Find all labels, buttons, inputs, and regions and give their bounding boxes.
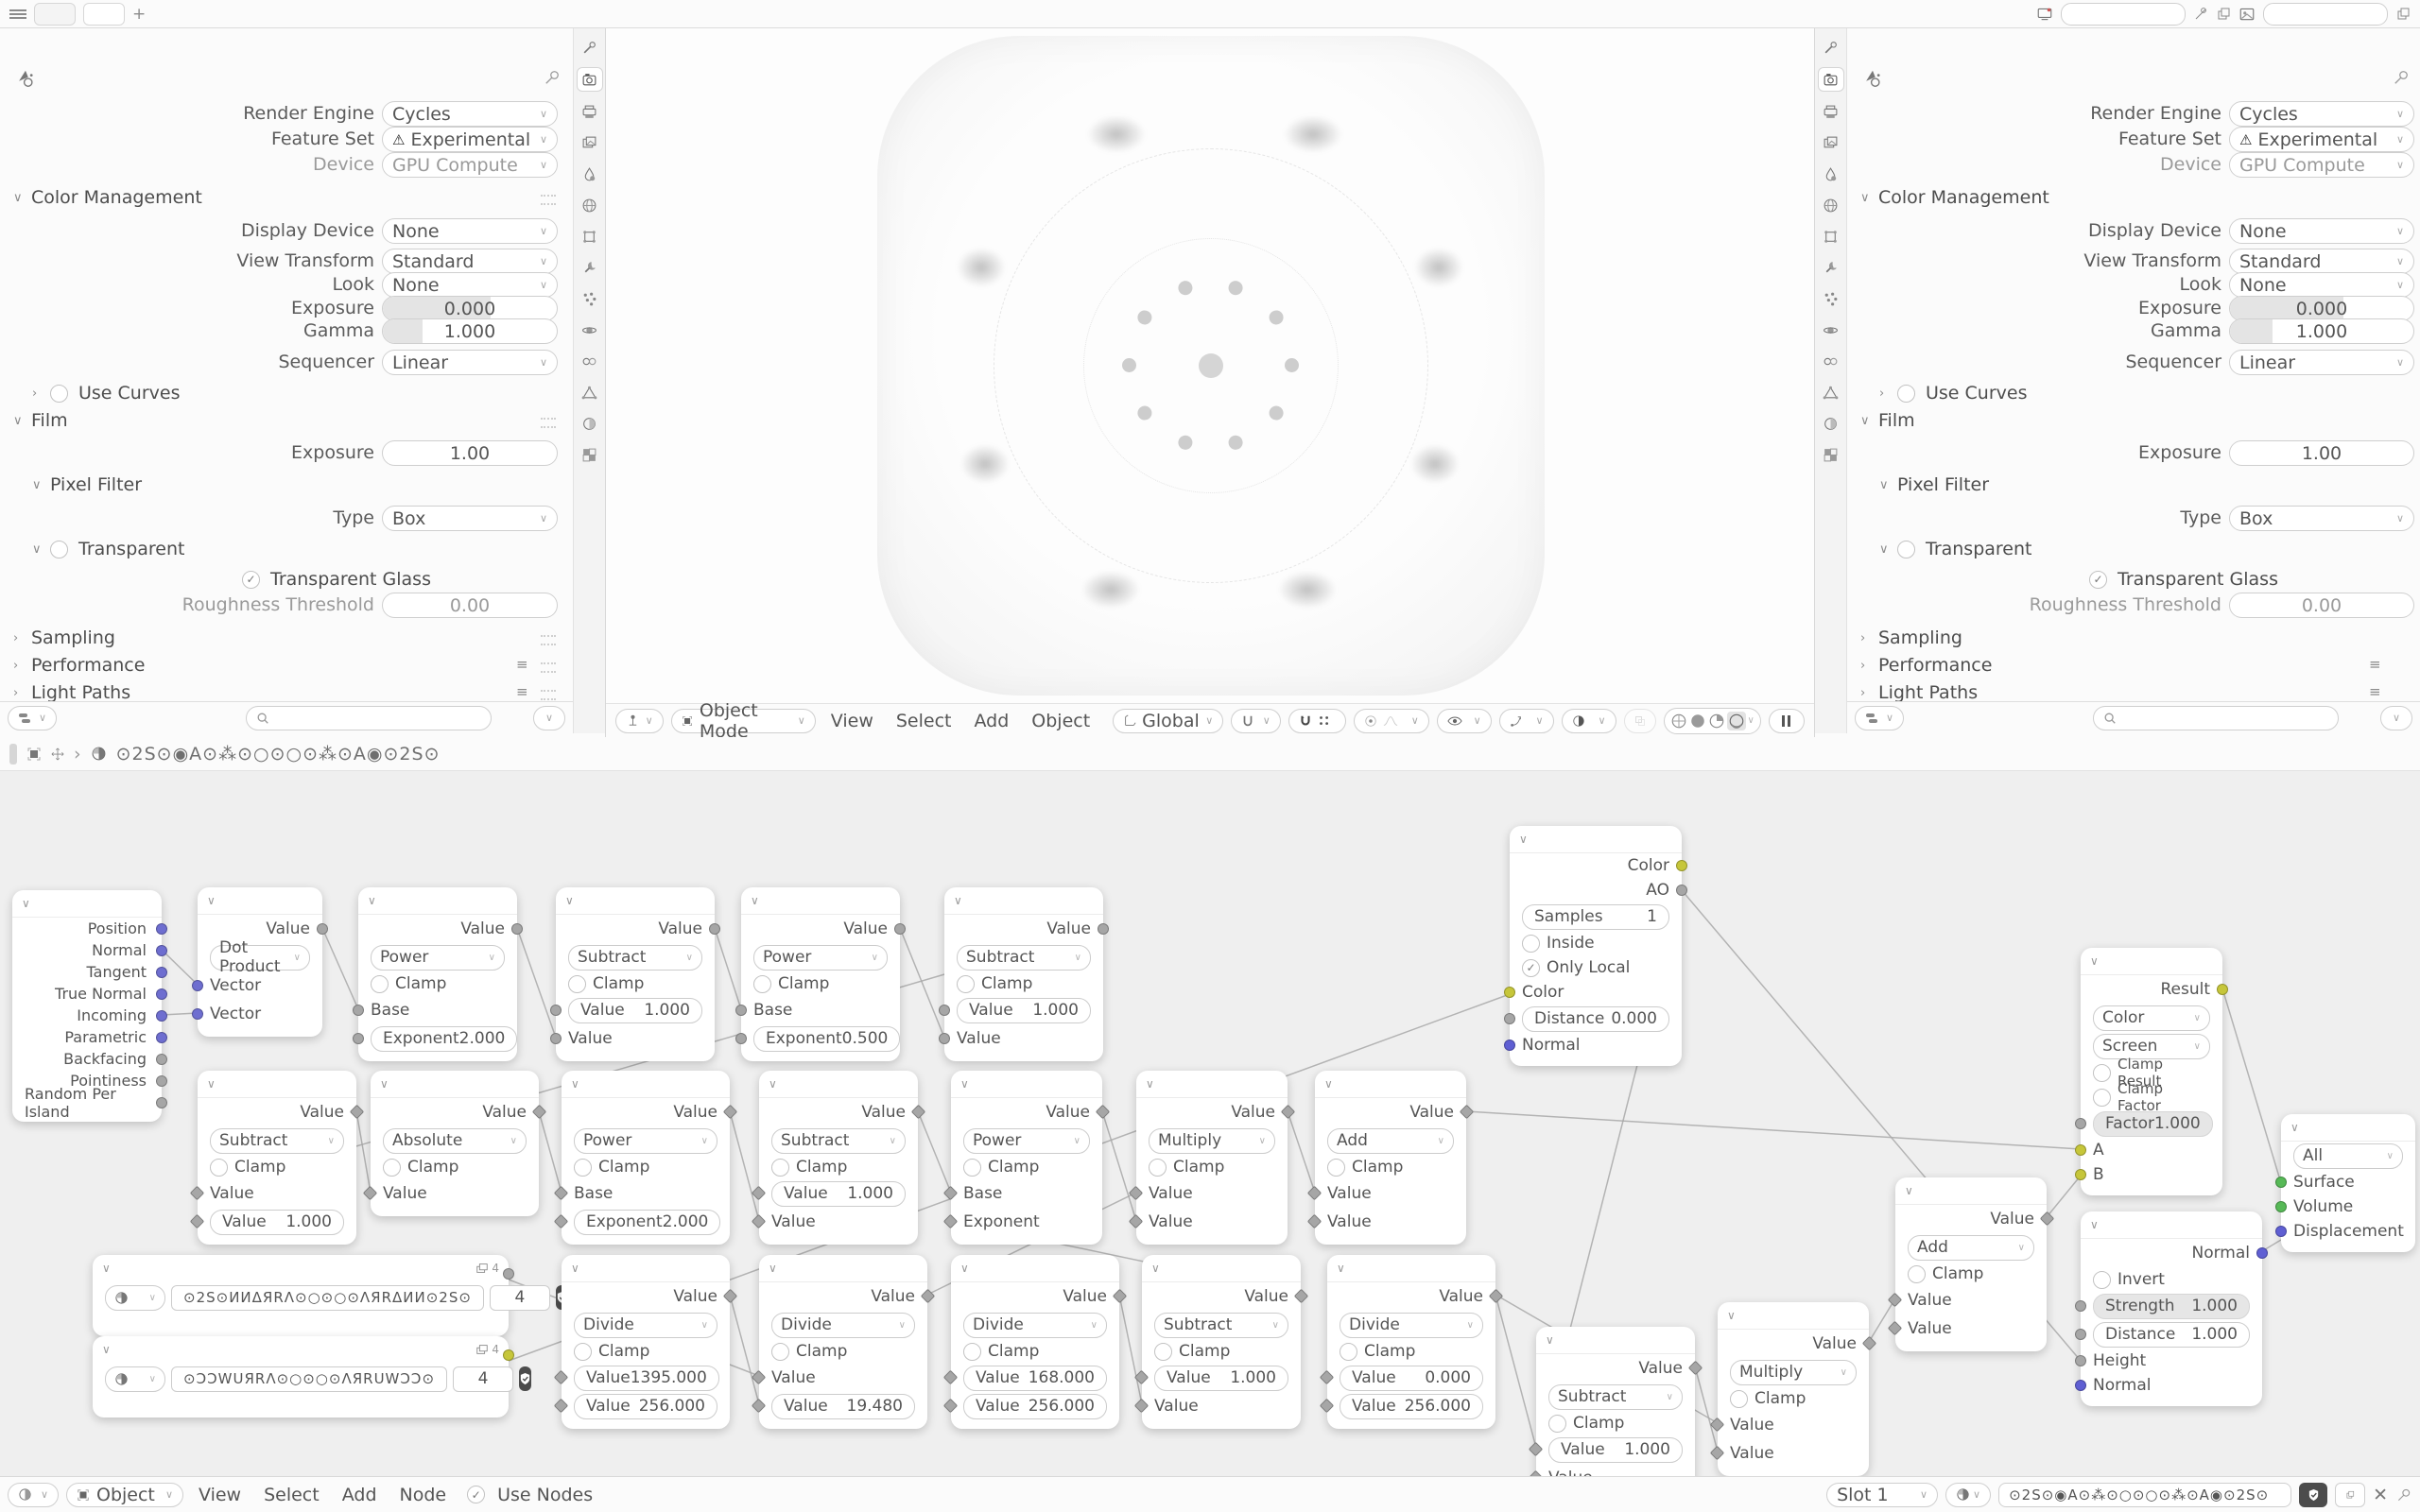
node-math-multiply-2[interactable]: ∨ Value Multiply∨ Clamp Value Value xyxy=(1718,1302,1869,1476)
socket-base-in[interactable] xyxy=(735,1005,747,1016)
socket-value-out[interactable] xyxy=(350,1105,365,1120)
search-input[interactable] xyxy=(246,706,492,730)
node-math-absolute[interactable]: ∨ Value Absolute∨ Clamp Value xyxy=(371,1071,539,1216)
clamp-checkbox[interactable] xyxy=(383,1159,401,1177)
new-material-copy-button[interactable] xyxy=(2335,1483,2365,1507)
operation-select[interactable]: Add∨ xyxy=(1327,1128,1454,1154)
value-field[interactable]: Value256.000 xyxy=(963,1394,1107,1419)
socket-value-in[interactable] xyxy=(1710,1417,1725,1433)
tab-modifiers[interactable] xyxy=(578,256,602,279)
look-select[interactable]: None∨ xyxy=(382,272,558,298)
invert-checkbox[interactable] xyxy=(2093,1271,2111,1289)
unlink-icon[interactable] xyxy=(2193,7,2208,22)
section-performance[interactable]: ›Performance xyxy=(1860,655,1992,676)
copy-icon[interactable] xyxy=(2216,7,2231,22)
feature-set-select[interactable]: ⚠Experimental∨ xyxy=(2229,127,2414,152)
users-count-button[interactable]: 4 xyxy=(453,1366,513,1392)
node-mix-color[interactable]: ∨ Result Color∨ Screen∨ Clamp Result Cla… xyxy=(2081,948,2222,1195)
shading-wireframe-button[interactable] xyxy=(1670,713,1687,730)
tab-modifiers[interactable] xyxy=(1819,256,1843,279)
node-ambient-occlusion[interactable]: ∨ Color AO Samples1 Inside ✓Only Local C… xyxy=(1510,826,1682,1066)
socket-ao-out[interactable] xyxy=(1676,885,1687,896)
tab-particles[interactable] xyxy=(1819,287,1843,310)
preset-list-icon[interactable]: ≡ xyxy=(2369,683,2381,700)
shader-type-select[interactable]: Object∨ xyxy=(66,1483,183,1507)
socket-value-in[interactable] xyxy=(943,1399,959,1414)
socket-value-out[interactable] xyxy=(532,1105,547,1120)
display-icon[interactable] xyxy=(2036,6,2053,23)
subsection-pixel-filter[interactable]: ∨Pixel Filter xyxy=(32,474,142,495)
fake-user-shield-button[interactable] xyxy=(519,1366,531,1391)
operation-select[interactable]: Add∨ xyxy=(1908,1235,2034,1261)
copy-icon[interactable] xyxy=(2395,7,2411,22)
editor-type-dropdown[interactable]: ∨ xyxy=(615,709,664,733)
value-field[interactable]: Value1395.000 xyxy=(574,1366,719,1391)
operation-select[interactable]: Power∨ xyxy=(753,945,888,971)
socket-value-in[interactable] xyxy=(550,1005,562,1016)
socket-color-out[interactable] xyxy=(503,1349,514,1361)
socket-value-in[interactable] xyxy=(190,1186,205,1201)
tab-material[interactable] xyxy=(578,412,602,435)
socket-value-in[interactable] xyxy=(1134,1399,1149,1414)
section-color-management[interactable]: ∨Color Management xyxy=(13,187,202,208)
operation-select[interactable]: Subtract∨ xyxy=(1154,1313,1288,1338)
device-select[interactable]: GPU Compute∨ xyxy=(382,152,558,178)
transparent-glass-checkbox[interactable]: ✓ xyxy=(242,571,260,589)
filter-toggle-button[interactable]: ∨ xyxy=(1855,706,1904,730)
shading-material-button[interactable] xyxy=(1708,713,1725,730)
socket-color-in[interactable] xyxy=(1504,987,1515,998)
clamp-checkbox[interactable] xyxy=(963,1159,981,1177)
app-menu-icon[interactable] xyxy=(9,8,26,21)
node-image-texture-1[interactable]: ∨4 ∨ ⊙2S⊙ИИΔЯRΛ⊙○⊙○⊙ΛЯRΔИИ⊙2S⊙ 4 xyxy=(93,1255,509,1336)
film-exposure-slider[interactable]: 1.00 xyxy=(382,440,558,466)
snap-toggle-group[interactable] xyxy=(1288,709,1347,733)
gizmo-dropdown[interactable]: ∨ xyxy=(1499,709,1554,733)
socket-value-out[interactable] xyxy=(1096,1105,1111,1120)
socket-value-in[interactable] xyxy=(752,1399,767,1414)
socket-surface-in[interactable] xyxy=(2275,1177,2287,1188)
tab-data[interactable] xyxy=(578,381,602,404)
transparent-checkbox[interactable] xyxy=(50,541,68,558)
tab-render[interactable] xyxy=(577,67,603,92)
options-dropdown[interactable]: ∨ xyxy=(2380,706,2412,730)
node-math-multiply-1[interactable]: ∨ Value Multiply∨ Clamp Value Value xyxy=(1136,1071,1288,1245)
snap-target-dropdown[interactable]: ∨ xyxy=(1231,709,1281,733)
subsection-transparent[interactable]: ∨Transparent xyxy=(32,539,185,559)
operation-select[interactable]: Power∨ xyxy=(963,1128,1090,1154)
socket-value-out[interactable] xyxy=(317,923,328,935)
tab-world[interactable] xyxy=(1819,194,1843,216)
socket-value-in[interactable] xyxy=(1307,1214,1322,1229)
sequencer-select[interactable]: Linear∨ xyxy=(2229,350,2414,375)
gamma-slider[interactable]: 1.000 xyxy=(382,318,558,344)
socket-vector-in[interactable] xyxy=(192,1008,203,1020)
socket-value-in[interactable] xyxy=(1129,1186,1144,1201)
section-sampling[interactable]: ›Sampling xyxy=(1860,627,1962,648)
scene-name-input[interactable] xyxy=(2061,3,2186,26)
socket-value-in[interactable] xyxy=(1129,1214,1144,1229)
socket-normal-in[interactable] xyxy=(2075,1380,2086,1391)
clamp-factor-checkbox[interactable] xyxy=(2093,1089,2111,1107)
node-math-power-3[interactable]: ∨ Value Power∨ Clamp Base Exponent2.000 xyxy=(562,1071,730,1245)
clamp-checkbox[interactable] xyxy=(574,1159,592,1177)
render-properties-icon[interactable] xyxy=(1862,68,1883,89)
socket-value-out[interactable] xyxy=(503,1268,514,1280)
node-math-power-2[interactable]: ∨ Value Power∨ Clamp Base Exponent0.500 xyxy=(741,887,900,1061)
socket-normal-out[interactable] xyxy=(2256,1247,2268,1259)
exponent-field[interactable]: Exponent2.000 xyxy=(574,1210,720,1235)
socket-exponent-in[interactable] xyxy=(353,1033,364,1044)
socket-value-in[interactable] xyxy=(752,1370,767,1385)
display-device-select[interactable]: None∨ xyxy=(382,218,558,244)
workspace-tab-2[interactable] xyxy=(83,3,125,26)
section-film[interactable]: ∨Film xyxy=(13,410,68,431)
socket-distance-in[interactable] xyxy=(2075,1329,2086,1340)
menu-view[interactable]: View xyxy=(191,1485,249,1505)
tab-particles[interactable] xyxy=(578,287,602,310)
tab-data[interactable] xyxy=(1819,381,1843,404)
socket-value-in[interactable] xyxy=(943,1370,959,1385)
socket-value-out[interactable] xyxy=(1113,1289,1128,1304)
socket-value-out[interactable] xyxy=(894,923,906,935)
menu-add[interactable]: Add xyxy=(335,1485,385,1505)
value-field[interactable]: Value19.480 xyxy=(771,1394,915,1419)
section-film[interactable]: ∨Film xyxy=(1860,410,1915,431)
pause-render-button[interactable] xyxy=(1769,709,1805,733)
value-field[interactable]: Value1.000 xyxy=(957,998,1091,1023)
socket-value-out[interactable] xyxy=(1862,1336,1877,1351)
operation-select[interactable]: Power∨ xyxy=(371,945,505,971)
socket-backfacing[interactable] xyxy=(156,1054,167,1065)
data-type-select[interactable]: Color∨ xyxy=(2093,1005,2210,1031)
proportional-edit-dropdown[interactable]: ∨ xyxy=(1354,709,1428,733)
tab-view-layer[interactable] xyxy=(1819,131,1843,154)
socket-true-normal[interactable] xyxy=(156,988,167,1000)
node-vector-math-dot[interactable]: ∨ Value Dot Product∨ Vector Vector xyxy=(198,887,322,1037)
socket-value-out[interactable] xyxy=(2040,1211,2055,1227)
socket-value-in[interactable] xyxy=(1888,1293,1903,1308)
menu-select[interactable]: Select xyxy=(889,711,959,731)
tab-physics[interactable] xyxy=(1819,318,1843,341)
value-field[interactable]: Value1.000 xyxy=(771,1181,906,1207)
socket-value-in[interactable] xyxy=(554,1399,569,1414)
socket-color-out[interactable] xyxy=(1676,860,1687,871)
fake-user-shield-button[interactable] xyxy=(2299,1483,2327,1507)
socket-normal-in[interactable] xyxy=(1504,1039,1515,1051)
socket-base-in[interactable] xyxy=(353,1005,364,1016)
socket-b-in[interactable] xyxy=(2075,1169,2086,1180)
use-curves-checkbox[interactable] xyxy=(1897,385,1915,403)
preset-list-icon[interactable]: ≡ xyxy=(516,656,528,673)
socket-value-in[interactable] xyxy=(752,1186,767,1201)
socket-base-in[interactable] xyxy=(943,1186,959,1201)
clamp-checkbox[interactable] xyxy=(771,1159,789,1177)
image-name-field[interactable]: ⊙2S⊙ИИΔЯRΛ⊙○⊙○⊙ΛЯRΔИИ⊙2S⊙ xyxy=(171,1285,484,1311)
editor-type-dropdown[interactable]: ∨ xyxy=(8,1483,59,1507)
material-name-field[interactable]: ⊙2S⊙◉A⊙⁂⊙○⊙○⊙⁂⊙A◉⊙2S⊙ xyxy=(1998,1483,2291,1507)
look-select[interactable]: None∨ xyxy=(2229,272,2414,298)
section-light-paths[interactable]: ›Light Paths xyxy=(13,682,130,703)
section-color-management[interactable]: ∨Color Management xyxy=(1860,187,2049,208)
use-curves-checkbox[interactable] xyxy=(50,385,68,403)
object-icon[interactable] xyxy=(26,747,42,762)
tab-object[interactable] xyxy=(1819,225,1843,248)
socket-value-in[interactable] xyxy=(752,1214,767,1229)
operation-select[interactable]: Absolute∨ xyxy=(383,1128,527,1154)
socket-value-in[interactable] xyxy=(1320,1399,1335,1414)
node-math-subtract-5[interactable]: ∨ Value Subtract∨ Clamp Value1.000 Value xyxy=(1142,1255,1301,1429)
drag-dots[interactable] xyxy=(541,195,556,205)
resize-handle[interactable] xyxy=(9,744,17,765)
transparent-glass-row[interactable]: ✓Transparent Glass xyxy=(2089,569,2278,590)
preset-list-icon[interactable]: ≡ xyxy=(516,683,528,700)
socket-result-out[interactable] xyxy=(2217,984,2228,995)
exposure-slider[interactable]: 0.000 xyxy=(382,296,558,321)
transparent-glass-checkbox[interactable]: ✓ xyxy=(2089,571,2107,589)
socket-value-out[interactable] xyxy=(1281,1105,1296,1120)
socket-incoming[interactable] xyxy=(156,1010,167,1022)
socket-value-out[interactable] xyxy=(1294,1289,1309,1304)
socket-distance-in[interactable] xyxy=(1504,1013,1515,1024)
tab-output[interactable] xyxy=(578,100,602,123)
clamp-checkbox[interactable] xyxy=(957,975,975,993)
socket-value-out[interactable] xyxy=(511,923,523,935)
value-field[interactable]: Value1.000 xyxy=(1154,1366,1288,1391)
tab-tool[interactable] xyxy=(1819,36,1843,59)
value-field[interactable]: Value1.000 xyxy=(210,1210,344,1235)
node-math-subtract-2[interactable]: ∨ Value Subtract∨ Clamp Value1.000 Value xyxy=(944,887,1103,1061)
menu-node[interactable]: Node xyxy=(392,1485,455,1505)
socket-exponent-in[interactable] xyxy=(554,1214,569,1229)
node-canvas[interactable]: ∨ Position Normal Tangent True Normal In… xyxy=(0,771,2420,1476)
socket-value-in[interactable] xyxy=(939,1033,950,1044)
value-field[interactable]: Value256.000 xyxy=(574,1394,717,1419)
operation-select[interactable]: Subtract∨ xyxy=(568,945,702,971)
clamp-checkbox[interactable] xyxy=(371,975,389,993)
node-math-add-1[interactable]: ∨ Value Add∨ Clamp Value Value xyxy=(1315,1071,1466,1245)
operation-select[interactable]: Divide∨ xyxy=(1340,1313,1483,1338)
menu-select[interactable]: Select xyxy=(256,1485,327,1505)
output-target-select[interactable]: All∨ xyxy=(2293,1143,2403,1169)
only-local-checkbox[interactable]: ✓ xyxy=(1522,959,1540,977)
menu-add[interactable]: Add xyxy=(966,711,1016,731)
socket-volume-in[interactable] xyxy=(2275,1201,2287,1212)
node-image-texture-2[interactable]: ∨4 ∨ ⊙ƆƆWUЯRΛ⊙○⊙○⊙ΛЯRUWƆƆ⊙ 4 xyxy=(93,1336,509,1417)
search-input[interactable] xyxy=(2093,706,2339,730)
add-workspace-button[interactable]: + xyxy=(132,5,146,24)
socket-factor-in[interactable] xyxy=(2075,1118,2086,1129)
inside-checkbox[interactable] xyxy=(1522,935,1540,953)
operation-select[interactable]: Divide∨ xyxy=(963,1313,1107,1338)
socket-value-out[interactable] xyxy=(911,1105,926,1120)
operation-select[interactable]: Subtract∨ xyxy=(957,945,1091,971)
clamp-checkbox[interactable] xyxy=(963,1343,981,1361)
tab-texture[interactable] xyxy=(1819,443,1843,466)
clamp-checkbox[interactable] xyxy=(1149,1159,1167,1177)
image-icon[interactable] xyxy=(2238,6,2256,23)
socket-value-in[interactable] xyxy=(550,1033,562,1044)
shading-solid-button[interactable] xyxy=(1689,713,1706,730)
node-math-divide-2[interactable]: ∨ Value Divide∨ Clamp Value Value19.480 xyxy=(759,1255,927,1429)
render-engine-select[interactable]: Cycles∨ xyxy=(382,101,558,127)
socket-a-in[interactable] xyxy=(2075,1144,2086,1156)
node-math-power-4[interactable]: ∨ Value Power∨ Clamp Base Exponent xyxy=(951,1071,1102,1245)
socket-tangent[interactable] xyxy=(156,967,167,978)
socket-value-in[interactable] xyxy=(554,1370,569,1385)
clamp-checkbox[interactable] xyxy=(1908,1265,1926,1283)
collapse-chevron-icon[interactable]: ∨ xyxy=(198,887,322,915)
operation-select[interactable]: Divide∨ xyxy=(771,1313,915,1338)
tab-view-layer[interactable] xyxy=(578,131,602,154)
socket-position[interactable] xyxy=(156,923,167,935)
value-field[interactable]: Value1.000 xyxy=(568,998,702,1023)
clamp-checkbox[interactable] xyxy=(574,1343,592,1361)
viewlayer-name-input[interactable] xyxy=(2263,3,2388,26)
roughness-threshold-slider[interactable]: 0.00 xyxy=(2229,593,2414,618)
socket-value-in[interactable] xyxy=(1710,1446,1725,1461)
pixel-filter-type-select[interactable]: Box∨ xyxy=(2229,506,2414,531)
browse-image-dropdown[interactable]: ∨ xyxy=(105,1366,165,1392)
node-math-divide-4[interactable]: ∨ Value Divide∨ Clamp Value0.000 Value25… xyxy=(1327,1255,1495,1429)
slot-select[interactable]: Slot 1∨ xyxy=(1826,1483,1938,1507)
clamp-checkbox[interactable] xyxy=(753,975,771,993)
section-sampling[interactable]: ›Sampling xyxy=(13,627,115,648)
node-math-subtract-3[interactable]: ∨ Value Subtract∨ Clamp Value Value1.000 xyxy=(198,1071,356,1245)
image-name-field[interactable]: ⊙ƆƆWUЯRΛ⊙○⊙○⊙ΛЯRUWƆƆ⊙ xyxy=(171,1366,447,1392)
clamp-checkbox[interactable] xyxy=(1327,1159,1345,1177)
exponent-field[interactable]: Exponent0.500 xyxy=(753,1026,900,1052)
socket-value-in[interactable] xyxy=(939,1005,950,1016)
value-field[interactable]: Value0.000 xyxy=(1340,1366,1483,1391)
socket-exponent-in[interactable] xyxy=(735,1033,747,1044)
tab-constraints[interactable] xyxy=(578,350,602,372)
clamp-checkbox[interactable] xyxy=(1154,1343,1172,1361)
overlays-dropdown[interactable]: ∨ xyxy=(1562,709,1616,733)
shader-node-editor[interactable]: › ⊙2S⊙◉A⊙⁂⊙○⊙○⊙⁂⊙A◉⊙2S⊙ ∨ xyxy=(0,737,2420,1512)
xray-toggle[interactable] xyxy=(1624,709,1656,733)
view-transform-select[interactable]: Standard∨ xyxy=(382,249,558,274)
tab-world[interactable] xyxy=(578,194,602,216)
distance-field[interactable]: Distance0.000 xyxy=(1522,1006,1669,1032)
subsection-use-curves[interactable]: ›Use Curves xyxy=(32,383,181,404)
shading-rendered-button[interactable] xyxy=(1727,712,1746,730)
drag-dots[interactable] xyxy=(541,690,556,700)
transparent-checkbox[interactable] xyxy=(1897,541,1915,558)
node-math-divide-1[interactable]: ∨ Value Divide∨ Clamp Value1395.000 Valu… xyxy=(562,1255,730,1429)
socket-normal[interactable] xyxy=(156,945,167,956)
socket-pointiness[interactable] xyxy=(156,1075,167,1087)
render-properties-icon[interactable] xyxy=(15,68,36,89)
viewport-3d[interactable]: ∨ Object Mode∨ View Select Add Object Gl… xyxy=(605,28,1815,737)
exposure-slider[interactable]: 0.000 xyxy=(2229,296,2414,321)
tab-scene[interactable] xyxy=(578,163,602,185)
socket-vector-in[interactable] xyxy=(192,980,203,991)
socket-strength-in[interactable] xyxy=(2075,1300,2086,1312)
tab-output[interactable] xyxy=(1819,100,1843,123)
tab-constraints[interactable] xyxy=(1819,350,1843,372)
distance-field[interactable]: Distance1.000 xyxy=(2093,1322,2250,1348)
node-math-subtract-4[interactable]: ∨ Value Subtract∨ Clamp Value1.000 Value xyxy=(759,1071,918,1245)
visibility-dropdown[interactable]: ∨ xyxy=(1437,709,1492,733)
socket-value-out[interactable] xyxy=(723,1105,738,1120)
pin-icon[interactable] xyxy=(543,68,562,87)
socket-value-out[interactable] xyxy=(1489,1289,1504,1304)
factor-field[interactable]: Factor1.000 xyxy=(2093,1111,2213,1137)
options-dropdown[interactable]: ∨ xyxy=(533,706,565,730)
unlink-material-button[interactable]: ✕ xyxy=(2373,1485,2388,1505)
tab-object[interactable] xyxy=(578,225,602,248)
socket-value-out[interactable] xyxy=(723,1289,738,1304)
section-light-paths[interactable]: ›Light Paths xyxy=(1860,682,1978,703)
socket-parametric[interactable] xyxy=(156,1032,167,1043)
browse-image-dropdown[interactable]: ∨ xyxy=(105,1285,165,1311)
drag-dots[interactable] xyxy=(541,662,556,673)
preset-list-icon[interactable]: ≡ xyxy=(2369,656,2381,673)
socket-value-in[interactable] xyxy=(1307,1186,1322,1201)
socket-value-out[interactable] xyxy=(921,1289,936,1304)
display-device-select[interactable]: None∨ xyxy=(2229,218,2414,244)
socket-value-in[interactable] xyxy=(1888,1321,1903,1336)
node-math-add-2[interactable]: ∨ Value Add∨ Clamp Value Value xyxy=(1895,1177,2047,1351)
device-select[interactable]: GPU Compute∨ xyxy=(2229,152,2414,178)
use-nodes-toggle[interactable]: ✓Use Nodes xyxy=(467,1485,593,1505)
gamma-slider[interactable]: 1.000 xyxy=(2229,318,2414,344)
collapse-chevron-icon[interactable]: ∨ xyxy=(12,890,162,918)
transparent-glass-row[interactable]: ✓Transparent Glass xyxy=(242,569,431,590)
socket-value-out[interactable] xyxy=(1460,1105,1475,1120)
node-math-power-1[interactable]: ∨ Value Power∨ Clamp Base Exponent2.000 xyxy=(358,887,517,1061)
sequencer-select[interactable]: Linear∨ xyxy=(382,350,558,375)
roughness-threshold-slider[interactable]: 0.00 xyxy=(382,593,558,618)
drag-dots[interactable] xyxy=(541,418,556,428)
users-count-button[interactable]: 4 xyxy=(490,1285,550,1311)
feature-set-select[interactable]: ⚠Experimental∨ xyxy=(382,127,558,152)
socket-base-in[interactable] xyxy=(554,1186,569,1201)
socket-value-in[interactable] xyxy=(190,1214,205,1229)
menu-object[interactable]: Object xyxy=(1024,711,1098,731)
socket-value-in[interactable] xyxy=(1320,1370,1335,1385)
node-bump[interactable]: ∨ Normal Invert Strength1.000 Distance1.… xyxy=(2081,1211,2262,1406)
clamp-result-checkbox[interactable] xyxy=(2093,1064,2111,1082)
pixel-filter-type-select[interactable]: Box∨ xyxy=(382,506,558,531)
tab-material[interactable] xyxy=(1819,412,1843,435)
operation-select[interactable]: Dot Product∨ xyxy=(210,945,310,971)
tab-physics[interactable] xyxy=(578,318,602,341)
tab-tool[interactable] xyxy=(578,36,602,59)
socket-value-in[interactable] xyxy=(1134,1370,1149,1385)
socket-exponent-in[interactable] xyxy=(943,1214,959,1229)
clamp-checkbox[interactable] xyxy=(210,1159,228,1177)
tab-render[interactable] xyxy=(1818,67,1844,92)
move-icon[interactable] xyxy=(51,747,64,761)
socket-random-per-island[interactable] xyxy=(156,1097,167,1108)
socket-value-out[interactable] xyxy=(1688,1361,1703,1376)
exponent-field[interactable]: Exponent2.000 xyxy=(371,1026,517,1052)
tab-texture[interactable] xyxy=(578,443,602,466)
socket-value-in[interactable] xyxy=(363,1186,378,1201)
node-geometry[interactable]: ∨ Position Normal Tangent True Normal In… xyxy=(12,890,162,1122)
pin-icon[interactable] xyxy=(2395,1486,2412,1503)
operation-select[interactable]: Divide∨ xyxy=(574,1313,717,1338)
socket-value-out[interactable] xyxy=(709,923,720,935)
operation-select[interactable]: Subtract∨ xyxy=(771,1128,906,1154)
subsection-pixel-filter[interactable]: ∨Pixel Filter xyxy=(1879,474,1989,495)
socket-height-in[interactable] xyxy=(2075,1355,2086,1366)
workspace-tab-1[interactable] xyxy=(34,3,76,26)
operation-select[interactable]: Subtract∨ xyxy=(210,1128,344,1154)
drag-dots[interactable] xyxy=(541,635,556,645)
